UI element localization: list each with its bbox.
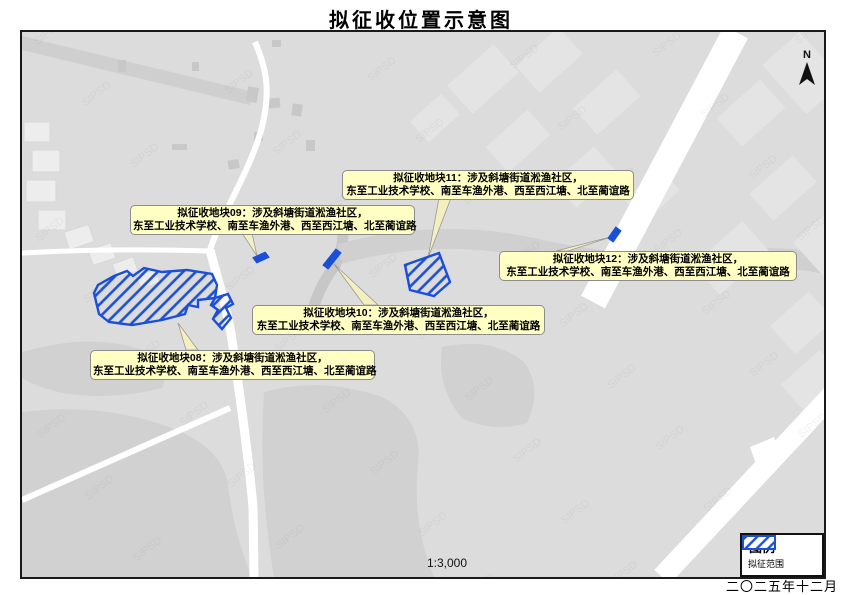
- callout-plot-09: 拟征收地块09：涉及斜塘街道淞渔社区， 东至工业技术学校、南至车渔外港、西至西江…: [130, 205, 415, 235]
- callout-plot-08-line1: 拟征收地块08：涉及斜塘街道淞渔社区，: [93, 352, 372, 365]
- callout-plot-09-line1: 拟征收地块09：涉及斜塘街道淞渔社区，: [133, 207, 412, 220]
- callout-plot-11-line1: 拟征收地块11：涉及斜塘街道淞渔社区，: [345, 172, 631, 185]
- legend-item-label: 拟征范围: [748, 557, 784, 570]
- callout-plot-10-line2: 东至工业技术学校、南至车渔外港、西至西江塘、北至蔺谊路: [255, 320, 542, 333]
- page: 拟征收位置示意图 SIPSD: [0, 0, 842, 595]
- callout-plot-10: 拟征收地块10：涉及斜塘街道淞渔社区， 东至工业技术学校、南至车渔外港、西至西江…: [252, 305, 545, 335]
- callout-plot-12: 拟征收地块12：涉及斜塘街道淞渔社区， 东至工业技术学校、南至车渔外港、西至西江…: [499, 251, 797, 281]
- callout-plot-10-line1: 拟征收地块10：涉及斜塘街道淞渔社区，: [255, 307, 542, 320]
- page-title: 拟征收位置示意图: [0, 4, 842, 33]
- legend-hatch-swatch: [742, 535, 776, 550]
- callout-plot-12-line2: 东至工业技术学校、南至车渔外港、西至西江塘、北至蔺谊路: [502, 266, 794, 279]
- north-label: N: [803, 49, 811, 61]
- callout-plot-12-line1: 拟征收地块12：涉及斜塘街道淞渔社区，: [502, 253, 794, 266]
- callout-plot-08-line2: 东至工业技术学校、南至车渔外港、西至西江塘、北至蔺谊路: [93, 365, 372, 378]
- callout-plot-09-line2: 东至工业技术学校、南至车渔外港、西至西江塘、北至蔺谊路: [133, 220, 412, 233]
- legend-box: 图例 拟征范围: [740, 533, 824, 577]
- map-date: 二〇二五年十二月: [726, 576, 838, 595]
- map-scale: 1:3,000: [407, 556, 487, 570]
- legend-item: 拟征范围: [748, 557, 822, 570]
- callout-plot-11-line2: 东至工业技术学校、南至车渔外港、西至西江塘、北至蔺谊路: [345, 185, 631, 198]
- callout-plot-08: 拟征收地块08：涉及斜塘街道淞渔社区， 东至工业技术学校、南至车渔外港、西至西江…: [90, 350, 375, 380]
- map-canvas: SIPSD: [20, 30, 826, 579]
- callout-plot-11: 拟征收地块11：涉及斜塘街道淞渔社区， 东至工业技术学校、南至车渔外港、西至西江…: [342, 170, 634, 200]
